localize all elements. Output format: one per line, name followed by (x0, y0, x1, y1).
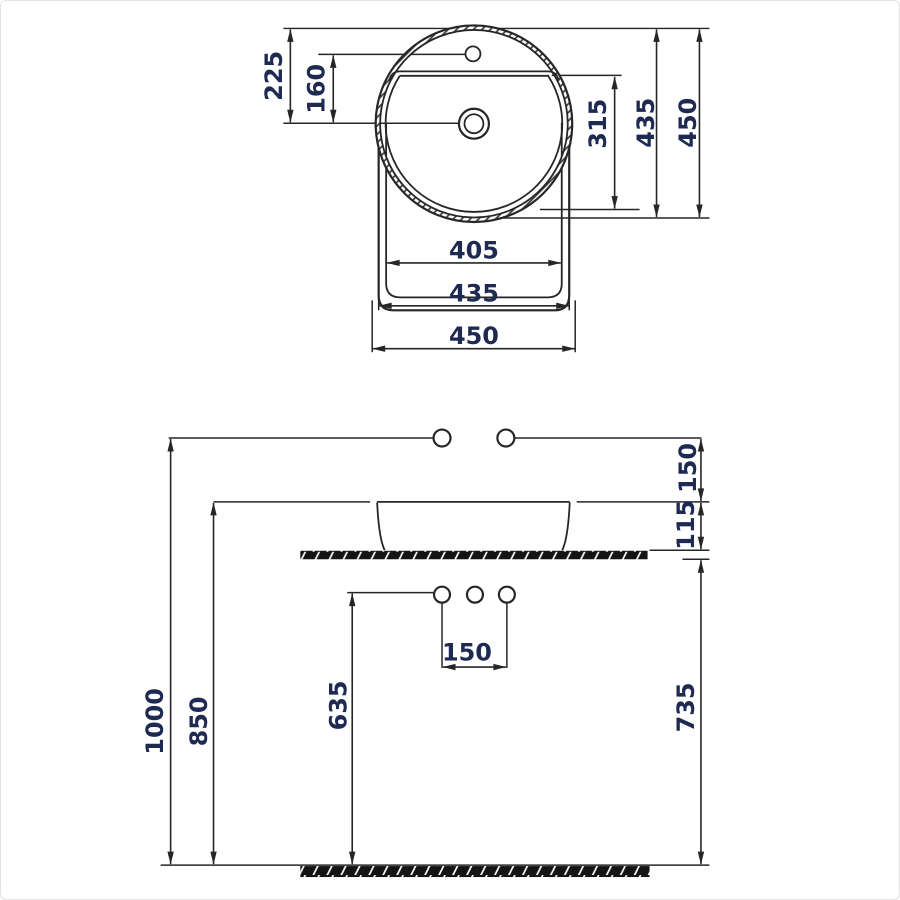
technical-drawing: 225 160 315 435 450 405 435 (0, 0, 900, 900)
dim-label-735: 735 (672, 682, 700, 732)
dim-label-315: 315 (584, 99, 612, 149)
dim-label-150-top: 150 (674, 443, 702, 493)
dim-width-bowl: 405 (387, 236, 561, 264)
wall-hole-right (499, 587, 515, 603)
top-view: 225 160 315 435 450 405 435 (260, 25, 710, 352)
floor-slab (300, 866, 649, 877)
dim-height-mid: 435 (632, 29, 660, 217)
dim-label-450-horizontal: 450 (449, 322, 499, 350)
dim-holes-height: 635 (325, 594, 353, 864)
wall-hole-left (434, 587, 450, 603)
dim-hole-spacing: 150 (442, 639, 506, 667)
dim-label-635: 635 (325, 680, 353, 730)
dim-rim-to-drain: 225 (260, 29, 291, 122)
counter-slab (300, 551, 647, 559)
dim-label-225: 225 (260, 51, 288, 101)
dim-width-mid: 435 (379, 279, 569, 307)
dim-label-115: 115 (672, 500, 700, 550)
wall-hole-middle (467, 587, 483, 603)
faucet-hole (465, 46, 480, 61)
dim-label-405: 405 (449, 236, 499, 264)
dim-label-435-vertical: 435 (632, 98, 660, 148)
drain-hole-outer (459, 109, 489, 139)
dim-label-160: 160 (303, 64, 331, 114)
dim-rim-height: 850 (185, 503, 214, 864)
dim-supply-height: 1000 (141, 439, 171, 864)
dim-counter-height: 735 (672, 560, 701, 864)
basin-profile-right (562, 502, 569, 550)
supply-hole-left (434, 430, 451, 447)
dim-supply-to-rim: 150 (674, 439, 702, 501)
dim-faucet-to-drain: 160 (303, 55, 334, 122)
drawing-svg: 225 160 315 435 450 405 435 (1, 1, 899, 899)
dim-label-150-holes: 150 (442, 639, 492, 667)
dim-label-450-vertical: 450 (674, 98, 702, 148)
dim-label-435-horizontal: 435 (449, 279, 499, 307)
dim-label-1000: 1000 (141, 688, 169, 755)
drain-hole-inner (464, 114, 483, 133)
dim-width-overall: 450 (373, 322, 575, 350)
front-view: 1000 850 635 150 115 735 150 (141, 430, 709, 878)
dim-label-850: 850 (185, 696, 213, 746)
dim-bowl-depth: 315 (584, 77, 615, 209)
basin-profile-left (377, 502, 384, 550)
dim-basin-height: 115 (672, 500, 701, 550)
inner-body-outline (386, 123, 562, 298)
supply-hole-right (497, 430, 514, 447)
bowl-outline (386, 76, 563, 212)
dim-height-overall: 450 (674, 29, 702, 217)
